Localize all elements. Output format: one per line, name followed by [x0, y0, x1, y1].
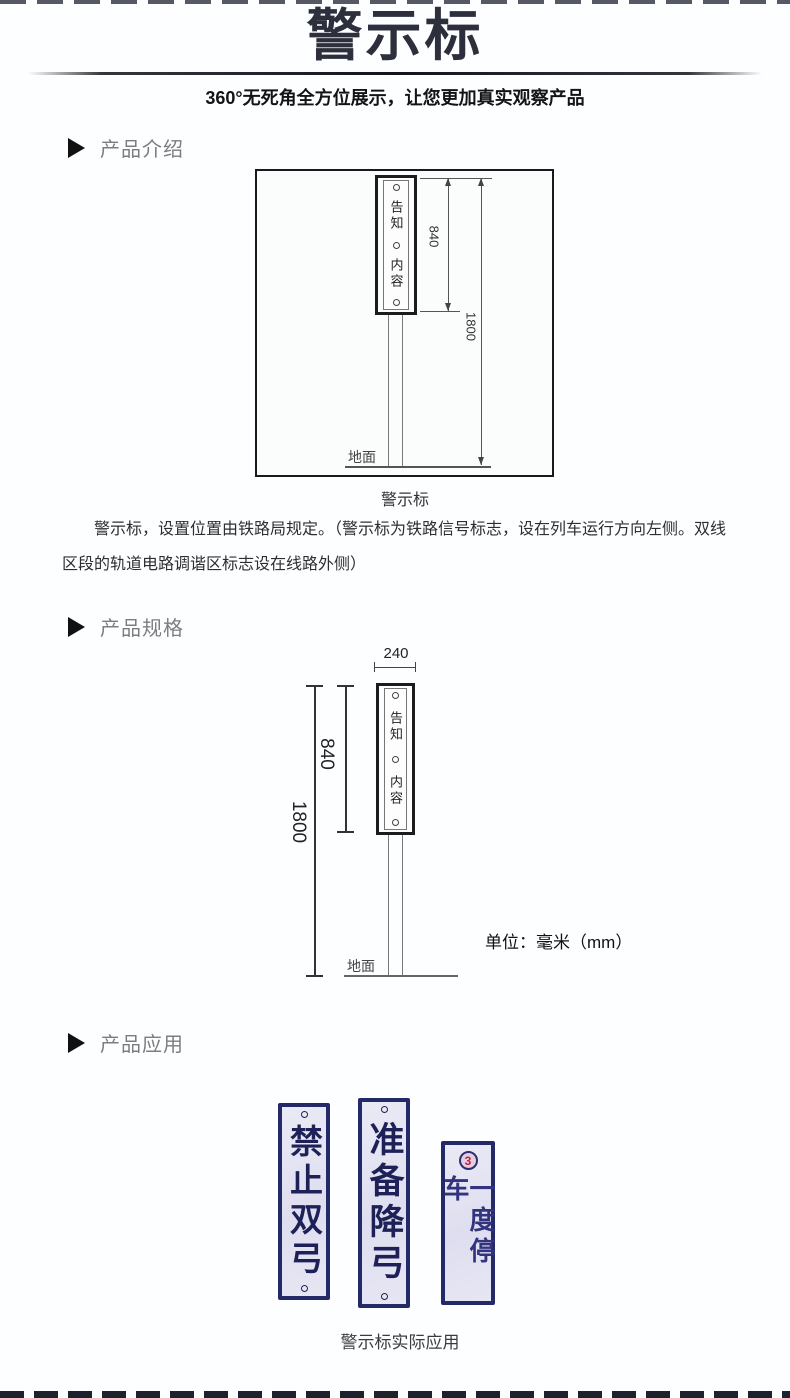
sign-post [388, 315, 403, 466]
section-heading-app: 产品应用 [68, 1028, 184, 1057]
diagram-sign-panel: 告知 内容 [375, 175, 417, 315]
dimension-line-1800 [481, 179, 482, 465]
triangle-bullet-icon [68, 617, 85, 637]
arrow-up-icon [478, 178, 484, 186]
extension-line [420, 311, 460, 312]
panel-text-bottom: 内容 [389, 775, 402, 807]
app-sign-text: 准备降弓 [367, 1121, 402, 1285]
section-heading-spec: 产品规格 [68, 612, 184, 641]
dimension-tick [415, 662, 416, 672]
ground-label: 地面 [348, 447, 376, 467]
product-detail-page: 警示标 360°无死角全方位展示，让您更加真实观察产品 产品介绍 告知 内容 地… [0, 0, 790, 1398]
bolt-hole [392, 756, 399, 763]
dimension-cap [306, 685, 323, 687]
dimension-line-840 [345, 685, 347, 833]
ground-label: 地面 [347, 956, 375, 976]
dimension-cap [306, 975, 323, 977]
dimension-cap [337, 831, 354, 833]
unit-note: 单位：毫米（mm） [485, 928, 632, 953]
page-title: 警示标 [0, 1, 790, 71]
bolt-hole [392, 692, 399, 699]
panel-text-top: 告知 [389, 711, 402, 743]
dimension-line-240 [374, 667, 415, 668]
dimension-line-840 [448, 179, 449, 311]
dimension-cap [337, 685, 354, 687]
arrow-down-icon [478, 457, 484, 465]
intro-paragraph: 警示标，设置位置由铁路局规定。（警示标为铁路信号标志，设在列车运行方向左侧。双线… [62, 512, 730, 582]
sign-post [388, 835, 403, 975]
arrow-up-icon [445, 178, 451, 186]
bolt-hole [393, 242, 400, 249]
triangle-bullet-icon [68, 1033, 85, 1053]
app-caption: 警示标实际应用 [255, 1328, 545, 1353]
intro-diagram: 告知 内容 地面 840 1800 [255, 169, 554, 477]
app-sign-photo: 禁止双弓 [278, 1103, 330, 1300]
section-heading-intro: 产品介绍 [68, 133, 184, 162]
section-heading-text: 产品规格 [100, 612, 184, 641]
app-sign-text: 禁止双弓 [288, 1124, 321, 1280]
dimension-line-1800 [314, 685, 316, 977]
triangle-bullet-icon [68, 138, 85, 158]
bottom-dashed-border [0, 1391, 790, 1398]
dimension-label-840: 840 [427, 220, 442, 254]
dimension-label-1800: 1800 [287, 796, 309, 848]
bolt-hole [393, 184, 400, 191]
title-divider [28, 72, 762, 75]
app-sign-photo: 3 一度停车 [441, 1141, 495, 1305]
diagram-sign-panel: 告知 内容 [376, 683, 415, 835]
spec-diagram: 240 告知 内容 地面 840 1800 单位：毫米（mm） [280, 645, 650, 990]
circled-number-badge: 3 [459, 1151, 478, 1170]
section-heading-text: 产品应用 [100, 1028, 184, 1057]
diagram-caption: 警示标 [255, 486, 555, 510]
dimension-tick [374, 662, 375, 672]
bolt-hole [301, 1111, 308, 1118]
app-sign-text: 一度停车 [442, 1175, 494, 1297]
dimension-label-240: 240 [366, 645, 426, 662]
app-sign-photo: 准备降弓 [358, 1098, 410, 1308]
panel-text-top: 告知 [390, 200, 403, 232]
panel-text-bottom: 内容 [390, 258, 403, 290]
arrow-down-icon [445, 303, 451, 311]
bolt-hole [301, 1285, 308, 1292]
bolt-hole [392, 819, 399, 826]
bolt-hole [393, 299, 400, 306]
diagram-sign-panel-inner: 告知 内容 [383, 180, 409, 310]
bolt-hole [381, 1106, 388, 1113]
diagram-sign-panel-inner: 告知 内容 [384, 688, 407, 830]
section-heading-text: 产品介绍 [100, 133, 184, 162]
bolt-hole [381, 1293, 388, 1300]
dimension-label-840: 840 [315, 734, 337, 774]
dimension-label-1800: 1800 [464, 305, 479, 349]
page-subtitle: 360°无死角全方位展示，让您更加真实观察产品 [0, 84, 790, 110]
